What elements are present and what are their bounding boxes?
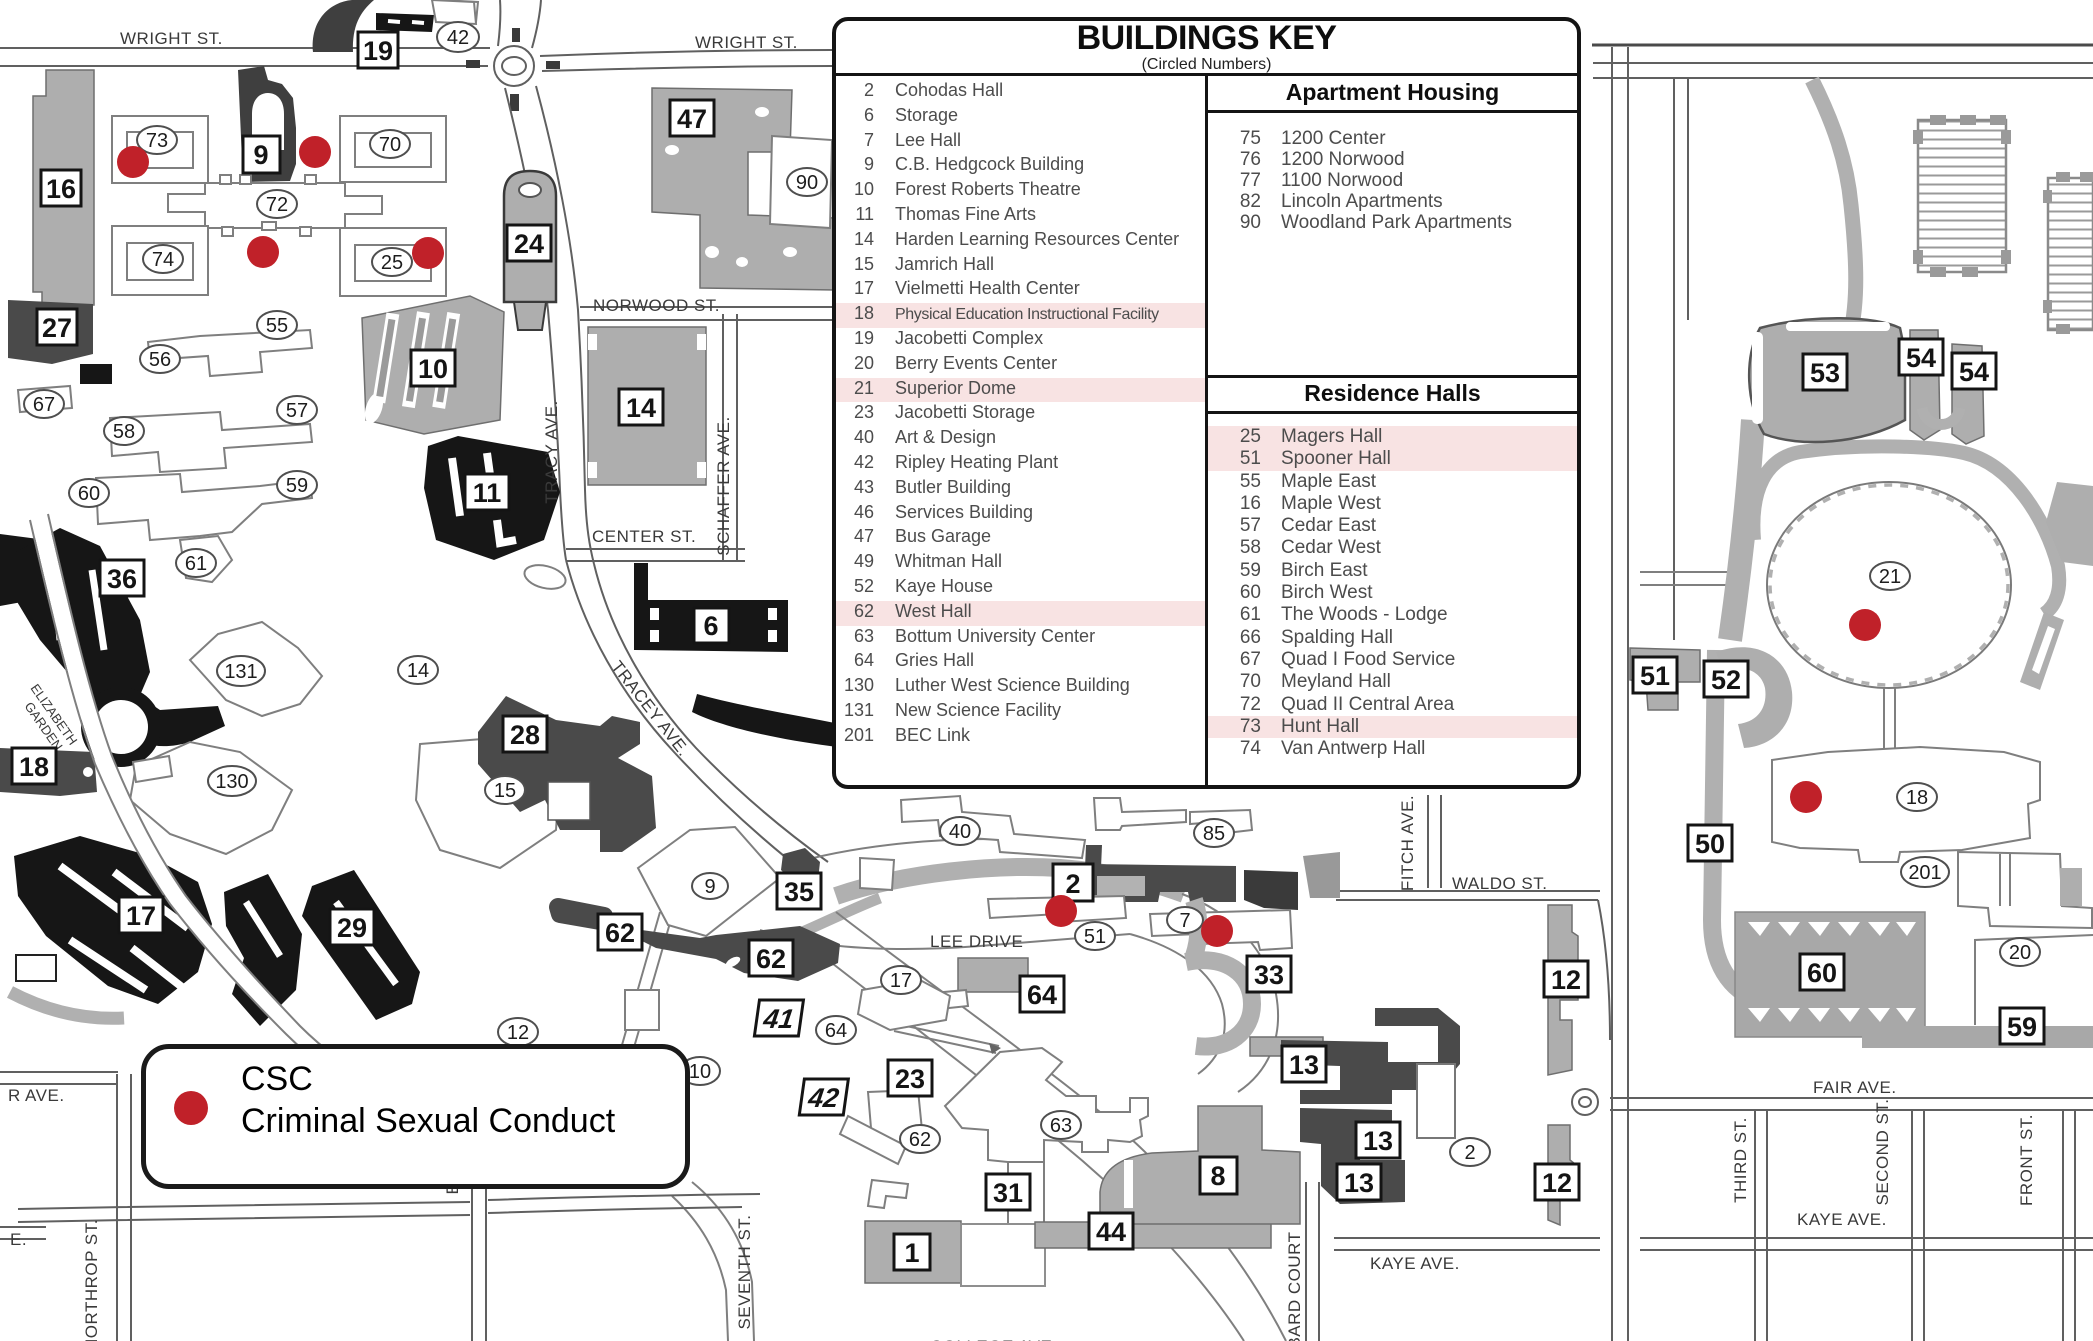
svg-text:55: 55 — [266, 315, 288, 337]
svg-text:10: 10 — [418, 354, 448, 384]
svg-text:NORTHROP ST.: NORTHROP ST. — [82, 1219, 101, 1341]
svg-text:WALDO ST.: WALDO ST. — [1452, 874, 1548, 893]
svg-text:25: 25 — [381, 252, 403, 274]
svg-text:8: 8 — [1210, 1161, 1225, 1191]
svg-text:KAYE AVE.: KAYE AVE. — [1370, 1254, 1460, 1273]
svg-text:R AVE.: R AVE. — [8, 1086, 65, 1105]
svg-text:40: 40 — [949, 821, 971, 843]
svg-text:58: 58 — [113, 421, 135, 443]
svg-text:E.: E. — [10, 1230, 27, 1249]
svg-text:7: 7 — [1179, 910, 1190, 932]
svg-text:52: 52 — [1711, 665, 1741, 695]
svg-text:12: 12 — [1542, 1168, 1572, 1198]
svg-text:SEVENTH ST.: SEVENTH ST. — [735, 1214, 754, 1329]
svg-text:29: 29 — [337, 913, 367, 943]
svg-text:SECOND ST.: SECOND ST. — [1873, 1098, 1892, 1205]
svg-text:131: 131 — [224, 661, 257, 683]
svg-text:36: 36 — [107, 564, 137, 594]
svg-text:53: 53 — [1810, 358, 1840, 388]
svg-text:54: 54 — [1906, 343, 1936, 373]
svg-text:NORWOOD ST.: NORWOOD ST. — [593, 296, 720, 315]
svg-text:63: 63 — [1050, 1115, 1072, 1137]
svg-text:67: 67 — [33, 394, 55, 416]
svg-text:THIRD ST.: THIRD ST. — [1731, 1117, 1750, 1203]
svg-text:27: 27 — [42, 313, 72, 343]
svg-text:41: 41 — [761, 1003, 796, 1034]
svg-text:73: 73 — [146, 130, 168, 152]
svg-text:24: 24 — [514, 229, 544, 259]
svg-text:72: 72 — [266, 194, 288, 216]
svg-text:KAYE AVE.: KAYE AVE. — [1797, 1210, 1887, 1229]
svg-text:16: 16 — [46, 174, 76, 204]
svg-text:60: 60 — [78, 483, 100, 505]
svg-text:WRIGHT ST.: WRIGHT ST. — [120, 29, 223, 48]
svg-text:28: 28 — [510, 720, 540, 750]
svg-text:13: 13 — [1344, 1168, 1374, 1198]
svg-text:31: 31 — [993, 1178, 1023, 1208]
svg-text:BARD COURT: BARD COURT — [1285, 1231, 1304, 1341]
svg-text:59: 59 — [286, 475, 308, 497]
svg-text:62: 62 — [756, 944, 786, 974]
svg-text:64: 64 — [1027, 980, 1057, 1010]
svg-text:54: 54 — [1959, 357, 1989, 387]
svg-text:20: 20 — [2009, 942, 2031, 964]
svg-text:FITCH AVE.: FITCH AVE. — [1398, 795, 1417, 891]
svg-text:12: 12 — [1551, 965, 1581, 995]
svg-text:70: 70 — [379, 134, 401, 156]
svg-text:COLLEGE AVE.: COLLEGE AVE. — [930, 1337, 1058, 1341]
svg-text:57: 57 — [286, 400, 308, 422]
svg-text:51: 51 — [1640, 661, 1670, 691]
svg-text:21: 21 — [1879, 566, 1901, 588]
svg-text:51: 51 — [1084, 926, 1106, 948]
svg-text:62: 62 — [605, 918, 635, 948]
svg-text:FAIR AVE.: FAIR AVE. — [1813, 1078, 1897, 1097]
svg-text:62: 62 — [909, 1129, 931, 1151]
svg-text:9: 9 — [253, 140, 268, 170]
svg-text:14: 14 — [407, 660, 429, 682]
svg-text:13: 13 — [1363, 1126, 1393, 1156]
svg-text:18: 18 — [1906, 787, 1928, 809]
svg-text:CENTER ST.: CENTER ST. — [592, 527, 696, 546]
svg-text:WRIGHT ST.: WRIGHT ST. — [695, 33, 798, 52]
svg-text:56: 56 — [149, 349, 171, 371]
svg-text:23: 23 — [895, 1064, 925, 1094]
svg-text:2: 2 — [1464, 1142, 1475, 1164]
svg-text:15: 15 — [494, 780, 516, 802]
svg-text:90: 90 — [796, 172, 818, 194]
svg-text:61: 61 — [185, 553, 207, 575]
svg-text:2: 2 — [1065, 869, 1080, 899]
svg-text:1: 1 — [904, 1238, 919, 1268]
svg-text:47: 47 — [677, 104, 707, 134]
svg-text:SCHAFFER AVE.: SCHAFFER AVE. — [714, 416, 733, 555]
svg-text:42: 42 — [806, 1082, 841, 1113]
svg-text:13: 13 — [1289, 1050, 1319, 1080]
svg-text:10: 10 — [689, 1061, 711, 1083]
svg-text:201: 201 — [1908, 862, 1941, 884]
svg-text:9: 9 — [704, 876, 715, 898]
svg-text:59: 59 — [2007, 1012, 2037, 1042]
svg-text:LEE DRIVE: LEE DRIVE — [930, 932, 1023, 951]
svg-text:85: 85 — [1203, 823, 1225, 845]
svg-text:FRONT ST.: FRONT ST. — [2017, 1114, 2036, 1206]
svg-text:17: 17 — [890, 970, 912, 992]
svg-text:33: 33 — [1254, 960, 1284, 990]
svg-text:50: 50 — [1695, 829, 1725, 859]
svg-text:130: 130 — [215, 771, 248, 793]
svg-text:44: 44 — [1096, 1217, 1126, 1247]
svg-text:11: 11 — [473, 478, 502, 508]
svg-text:64: 64 — [825, 1020, 847, 1042]
svg-text:60: 60 — [1807, 958, 1837, 988]
svg-text:17: 17 — [126, 901, 156, 931]
svg-text:18: 18 — [19, 752, 49, 782]
svg-text:19: 19 — [363, 36, 393, 66]
svg-text:74: 74 — [152, 249, 174, 271]
svg-text:35: 35 — [784, 877, 814, 907]
svg-text:14: 14 — [626, 393, 656, 423]
svg-text:12: 12 — [507, 1022, 529, 1044]
svg-text:42: 42 — [447, 27, 469, 49]
svg-text:TRACY AVE.: TRACY AVE. — [542, 400, 561, 504]
svg-text:6: 6 — [703, 611, 718, 641]
